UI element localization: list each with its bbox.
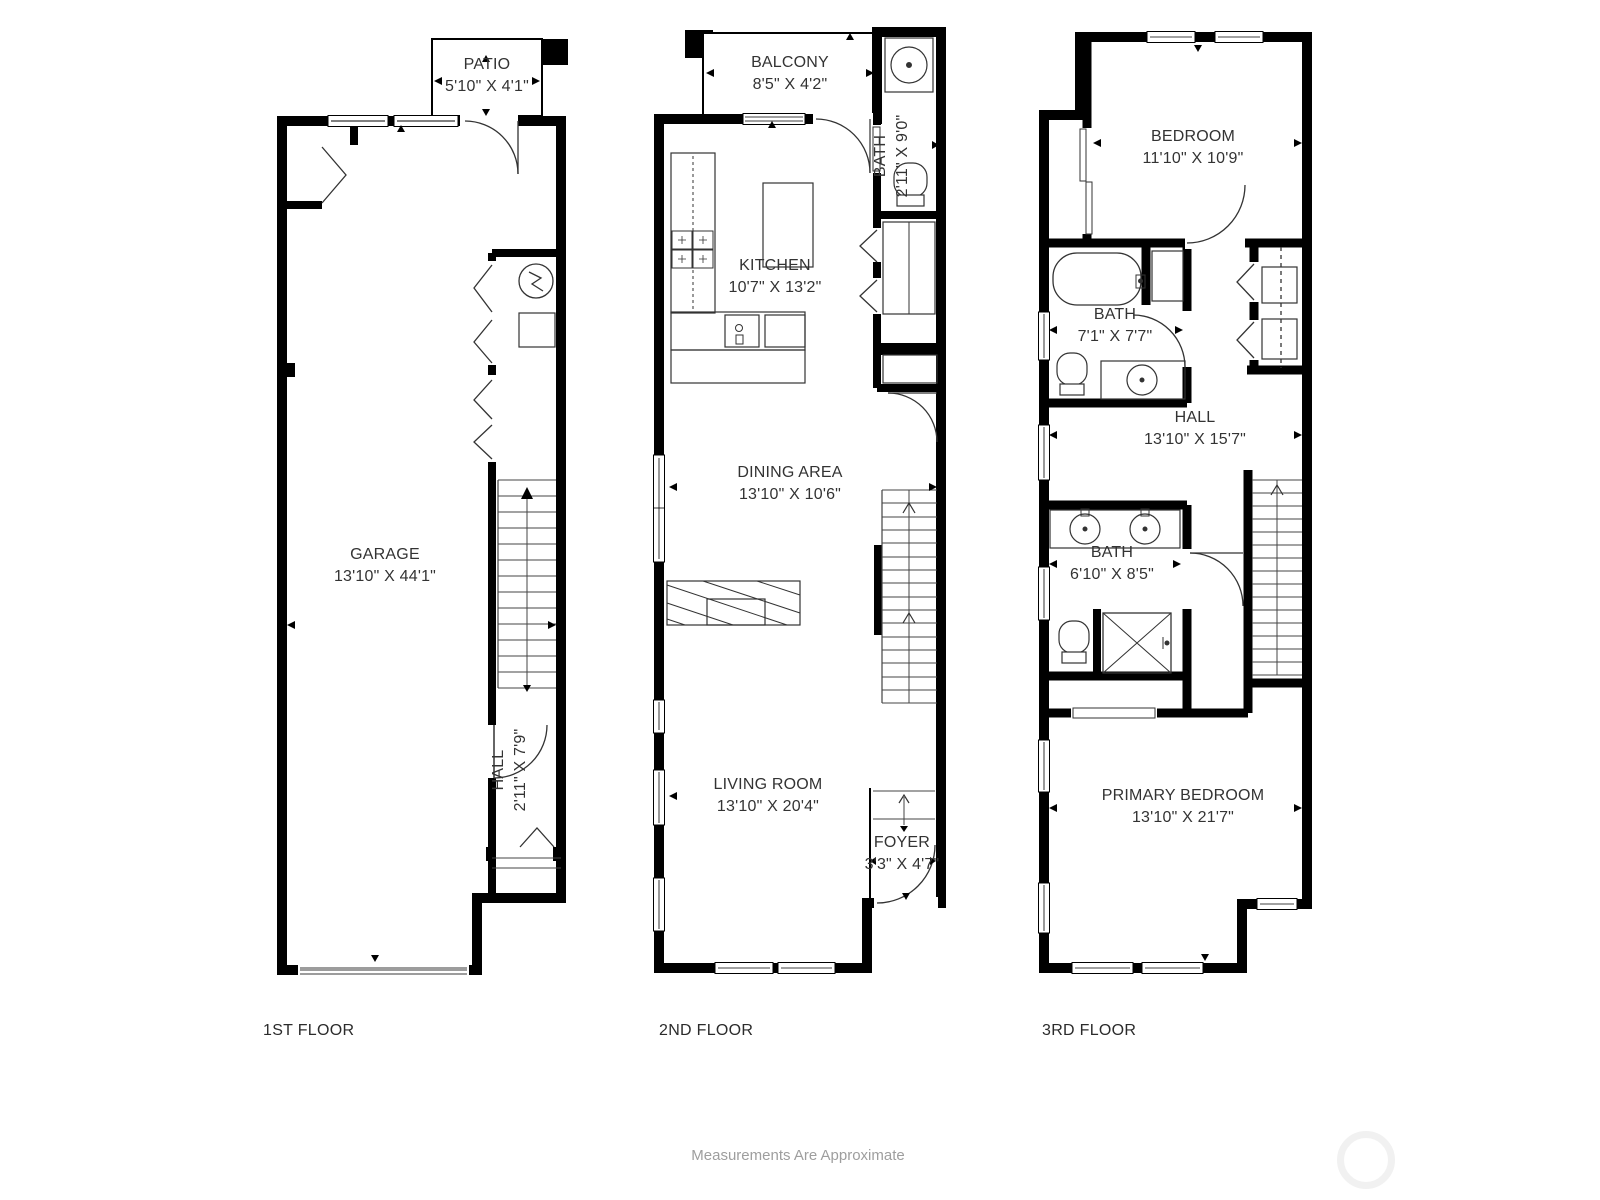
column-block	[542, 39, 568, 65]
room-label-living: LIVING ROOM 13'10" X 20'4"	[714, 774, 823, 818]
room-name: HALL	[1144, 407, 1246, 429]
floor1-drawing	[270, 25, 570, 975]
room-label-dining: DINING AREA 13'10" X 10'6"	[737, 462, 842, 506]
room-name: HALL	[488, 729, 510, 812]
room-name: KITCHEN	[728, 255, 821, 277]
room-label-bath-lower: BATH 6'10" X 8'5"	[1070, 542, 1154, 586]
window	[1039, 425, 1050, 480]
room-dims: 7'1" X 7'7"	[1078, 326, 1153, 348]
window	[1147, 32, 1195, 43]
window	[1215, 32, 1263, 43]
window	[654, 455, 665, 562]
window	[394, 116, 458, 127]
room-dims: 2'11" X 9'0"	[892, 115, 914, 198]
room-dims: 13'10" X 10'6"	[737, 484, 842, 506]
floor-plan-page: PATIO 5'10" X 4'1" GARAGE 13'10" X 44'1"…	[0, 0, 1600, 1200]
room-name: BATH	[1070, 542, 1154, 564]
room-label-foyer: FOYER 3'3" X 4'7"	[865, 832, 940, 876]
room-label-kitchen: KITCHEN 10'7" X 13'2"	[728, 255, 821, 299]
room-dims: 3'3" X 4'7"	[865, 854, 940, 876]
room-label-hall: HALL 13'10" X 15'7"	[1144, 407, 1246, 451]
room-label-balcony: BALCONY 8'5" X 4'2"	[751, 52, 829, 96]
room-dims: 6'10" X 8'5"	[1070, 564, 1154, 586]
floor-plan-2nd: BALCONY 8'5" X 4'2" BATH 2'11" X 9'0" KI…	[645, 25, 950, 975]
window	[1072, 963, 1133, 974]
room-dims: 2'11" X 7'9"	[510, 729, 532, 812]
garage-door	[300, 967, 467, 975]
window	[328, 116, 388, 127]
room-dims: 13'10" X 15'7"	[1144, 429, 1246, 451]
room-name: BATH	[1078, 304, 1153, 326]
room-label-bath-upper: BATH 7'1" X 7'7"	[1078, 304, 1153, 348]
room-label-patio: PATIO 5'10" X 4'1"	[445, 54, 529, 98]
room-dims: 13'10" X 44'1"	[334, 566, 436, 588]
floor1-caption: 1ST FLOOR	[263, 1022, 354, 1040]
window	[654, 878, 665, 931]
room-name: PRIMARY BEDROOM	[1102, 785, 1264, 807]
toilet	[1059, 621, 1089, 663]
room-label-hall: HALL 2'11" X 7'9"	[488, 729, 532, 812]
room-dims: 10'7" X 13'2"	[728, 277, 821, 299]
room-name: BATH	[870, 115, 892, 198]
floor-plan-1st: PATIO 5'10" X 4'1" GARAGE 13'10" X 44'1"…	[270, 25, 570, 975]
logo-watermark	[1337, 1131, 1395, 1189]
toilet	[1057, 353, 1087, 395]
room-name: DINING AREA	[737, 462, 842, 484]
floor1-structure	[277, 39, 568, 975]
wall-stub	[277, 363, 295, 377]
room-dims: 13'10" X 20'4"	[714, 796, 823, 818]
room-name: BALCONY	[751, 52, 829, 74]
room-name: PATIO	[445, 54, 529, 76]
floor3-caption: 3RD FLOOR	[1042, 1022, 1136, 1040]
window	[1039, 312, 1050, 360]
room-name: FOYER	[865, 832, 940, 854]
room-name: LIVING ROOM	[714, 774, 823, 796]
window	[778, 963, 835, 974]
disclaimer-text: Measurements Are Approximate	[691, 1147, 904, 1164]
room-label-bath: BATH 2'11" X 9'0"	[870, 115, 914, 198]
room-dims: 11'10" X 10'9"	[1143, 148, 1244, 170]
room-label-garage: GARAGE 13'10" X 44'1"	[334, 544, 436, 588]
window	[654, 700, 665, 733]
floor-plan-3rd: BEDROOM 11'10" X 10'9" BATH 7'1" X 7'7" …	[1015, 25, 1315, 975]
window	[715, 963, 773, 974]
window	[1039, 567, 1050, 620]
cased-opening	[1073, 708, 1155, 718]
window	[1039, 740, 1050, 792]
room-name: GARAGE	[334, 544, 436, 566]
window	[654, 770, 665, 825]
floor2-caption: 2ND FLOOR	[659, 1022, 753, 1040]
room-dims: 5'10" X 4'1"	[445, 76, 529, 98]
window	[1257, 899, 1297, 910]
room-name: BEDROOM	[1143, 126, 1244, 148]
fireplace	[667, 581, 800, 625]
window	[1142, 963, 1203, 974]
window	[1039, 883, 1050, 933]
room-label-primary: PRIMARY BEDROOM 13'10" X 21'7"	[1102, 785, 1264, 829]
room-label-bedroom: BEDROOM 11'10" X 10'9"	[1143, 126, 1244, 170]
room-dims: 8'5" X 4'2"	[751, 74, 829, 96]
room-dims: 13'10" X 21'7"	[1102, 807, 1264, 829]
sliding-glass-door	[743, 114, 805, 125]
